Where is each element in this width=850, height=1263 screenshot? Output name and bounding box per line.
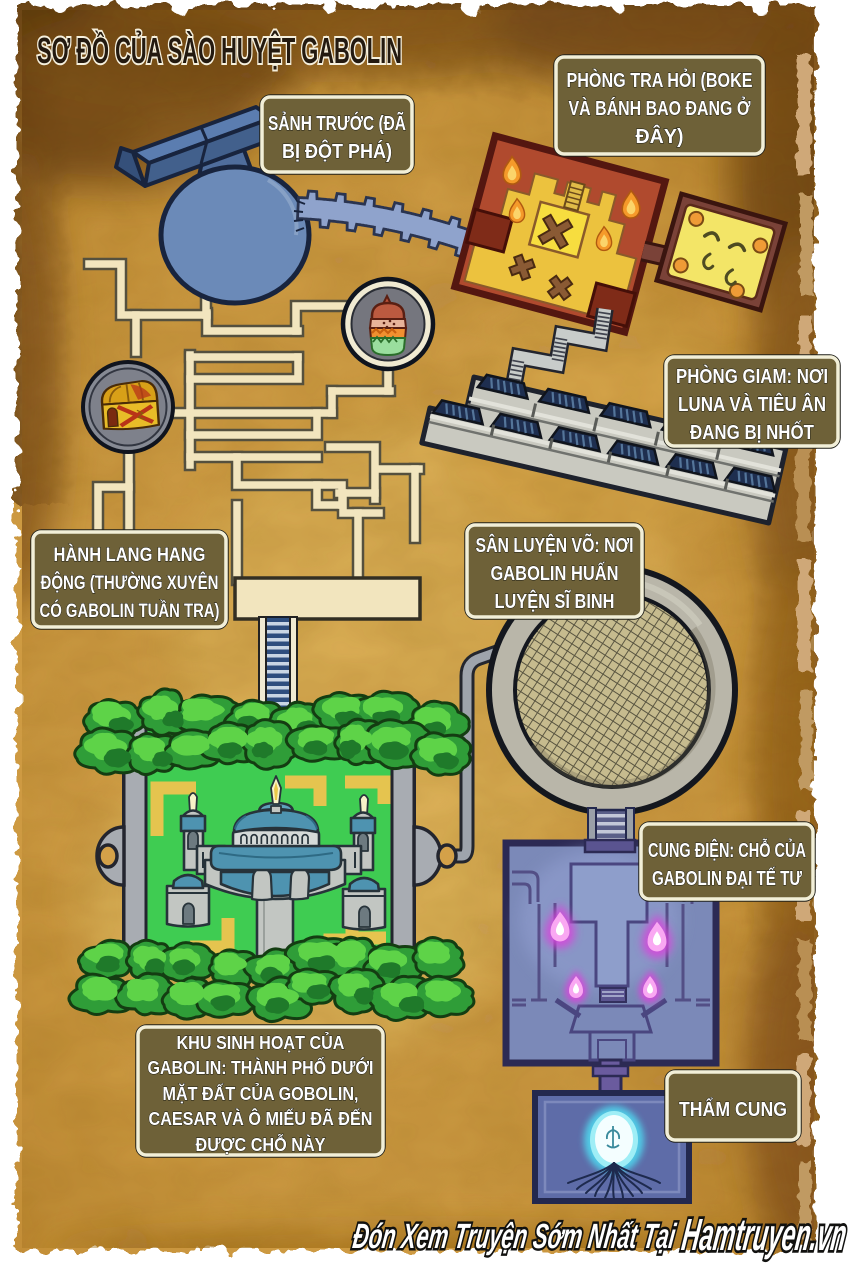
svg-text:KHU SINH HOẠT CỦA: KHU SINH HOẠT CỦA [177, 1032, 345, 1053]
svg-text:SẢNH TRƯỚC (ĐÃ: SẢNH TRƯỚC (ĐÃ [268, 111, 406, 135]
svg-text:BỊ ĐỘT PHÁ): BỊ ĐỘT PHÁ) [282, 139, 392, 163]
svg-text:THẨM CUNG: THẨM CUNG [679, 1098, 787, 1121]
svg-text:GABOLIN ĐẠI TẾ TƯ: GABOLIN ĐẠI TẾ TƯ [652, 867, 802, 890]
svg-text:LUYỆN SĨ BINH: LUYỆN SĨ BINH [495, 589, 615, 613]
svg-text:PHÒNG GIAM: NƠI: PHÒNG GIAM: NƠI [676, 364, 828, 388]
svg-text:CUNG ĐIỆN: CHỖ CỦA: CUNG ĐIỆN: CHỖ CỦA [648, 838, 806, 862]
svg-text:PHÒNG TRA HỎI (BOKE: PHÒNG TRA HỎI (BOKE [567, 68, 753, 92]
svg-text:LUNA VÀ TIÊU ÂN: LUNA VÀ TIÊU ÂN [678, 392, 826, 416]
svg-text:Hamtruyen.vn: Hamtruyen.vn [679, 1209, 850, 1260]
svg-text:CAESAR VÀ Ô MIẾU ĐÃ ĐẾN: CAESAR VÀ Ô MIẾU ĐÃ ĐẾN [149, 1108, 373, 1129]
svg-text:ĐƯỢC CHỖ NÀY: ĐƯỢC CHỖ NÀY [196, 1134, 327, 1155]
svg-text:Đón Xem Truyện Sớm Nhất Tại: Đón Xem Truyện Sớm Nhất Tại [350, 1217, 678, 1256]
svg-text:MẶT ĐẤT CỦA GOBOLIN,: MẶT ĐẤT CỦA GOBOLIN, [163, 1083, 359, 1104]
svg-text:SƠ ĐỒ CỦA SÀO HUYỆT GABOLIN: SƠ ĐỒ CỦA SÀO HUYỆT GABOLIN [37, 29, 402, 71]
svg-text:VÀ BÁNH BAO ĐANG Ở: VÀ BÁNH BAO ĐANG Ở [569, 96, 752, 120]
svg-text:ĐỘNG (THƯỜNG XUYÊN: ĐỘNG (THƯỜNG XUYÊN [41, 572, 219, 594]
svg-text:ĐÂY): ĐÂY) [636, 124, 684, 148]
svg-text:SÂN LUYỆN VÕ: NƠI: SÂN LUYỆN VÕ: NƠI [476, 533, 634, 557]
svg-text:GABOLIN: THÀNH PHỐ DƯỚI: GABOLIN: THÀNH PHỐ DƯỚI [148, 1057, 374, 1078]
svg-text:HÀNH LANG HANG: HÀNH LANG HANG [54, 544, 206, 566]
svg-text:GABOLIN HUẤN: GABOLIN HUẤN [491, 562, 619, 585]
svg-text:ĐANG BỊ NHỐT: ĐANG BỊ NHỐT [690, 420, 814, 444]
svg-text:CÓ GABOLIN TUẦN TRA): CÓ GABOLIN TUẦN TRA) [40, 600, 220, 622]
